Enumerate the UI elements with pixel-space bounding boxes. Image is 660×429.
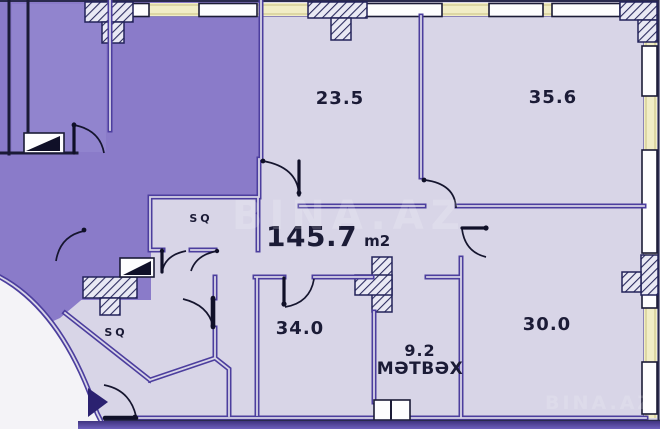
floor-plan-canvas: 23.5 35.6 34.0 30.0 9.2 MƏTBƏX SQ SQ 145… (0, 0, 660, 429)
kitchen-name-label: MƏTBƏX (365, 361, 475, 379)
kitchen-area-label: 9.2 (380, 343, 460, 360)
total-area-value: 145.7 (266, 222, 357, 251)
room-area-label-35-6: 35.6 (513, 89, 593, 108)
room-area-label-23-5: 23.5 (300, 90, 380, 109)
total-area-unit: m2 (364, 234, 390, 250)
room-area-label-30-0: 30.0 (507, 316, 587, 335)
sq-label-lower: SQ (98, 327, 134, 339)
room-area-label-34-0: 34.0 (260, 320, 340, 339)
floor-plan-drawing (0, 0, 660, 429)
sq-label-upper: SQ (183, 213, 219, 225)
bottom-facade-band (78, 421, 660, 429)
door-slab-symbol (120, 258, 154, 277)
kitchen-balcony-door (374, 400, 410, 420)
total-area-label: 145.7 m2 (266, 222, 390, 251)
